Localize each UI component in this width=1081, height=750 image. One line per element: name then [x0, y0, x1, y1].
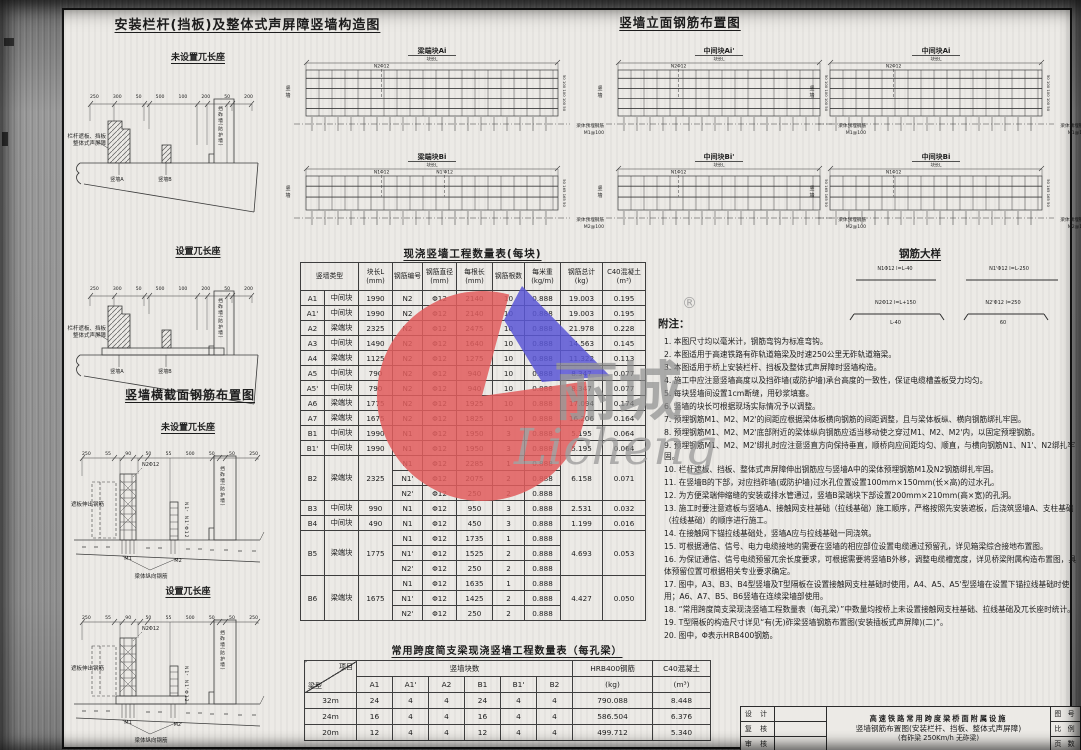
block-table-row: A4梁端块1125N2Φ121275100.88811.3220.113	[301, 351, 646, 366]
scan-mark	[2, 132, 8, 146]
block-table-row: A2梁端块2325N2Φ122475100.88821.9780.228	[301, 321, 646, 336]
ballast-wall-label-1: 挡砟墙(防护墙)	[216, 106, 223, 162]
rebar-n2-label: N2Φ12 l=L+150	[848, 300, 943, 306]
block-table-row: A6梁端块1775N2Φ121925100.88817.0940.174	[301, 396, 646, 411]
wall-a-label-1: 竖墙A	[102, 176, 132, 183]
block-table-row: A1'中间块1990N2Φ122140100.88819.0030.195	[301, 306, 646, 321]
ballast-wall-label-4: 挡砟墙(防护墙)	[218, 630, 225, 686]
block-table-header: 钢筋总计(kg)	[561, 263, 603, 291]
note-item: 5. 每块竖墙间设置1cm断缝，用砂浆填塞。	[664, 388, 1076, 400]
block-table-row: A5'中间块790N2Φ12940100.8888.3470.077	[301, 381, 646, 396]
block-table-header: 每根长(mm)	[457, 263, 493, 291]
railing-label-1: 栏杆遮板、挡板 整体式声屏障	[58, 134, 106, 149]
block-table-row: A1中间块1990N2Φ122140100.88819.0030.195	[301, 291, 646, 306]
block-table-row: B4中间块490N1Φ1245030.8881.1990.016	[301, 516, 646, 531]
notes-title: 附注：	[658, 316, 1076, 331]
block-table-header: 竖墙类型	[301, 263, 359, 291]
notes-section: 附注： 1. 本图尺寸均以毫米计，钢筋弯钩为标准弯钩。2. 本图适用于高速铁路有…	[658, 316, 1076, 643]
block-table-header: 每米重(kg/m)	[525, 263, 561, 291]
rebar-detail-title: 钢筋大样	[878, 246, 962, 261]
rebar-n1p-label: N1'Φ12 l=L-250	[960, 266, 1058, 272]
block-table-row: B3中间块990N1Φ1295030.8882.5310.032	[301, 501, 646, 516]
m1-label-1: M1	[118, 556, 138, 562]
block-table-header: 钢筋根数	[493, 263, 525, 291]
block-table-row: B1中间块1990N1Φ12195030.8885.1950.064	[301, 426, 646, 441]
railing-label-2: 栏杆遮板、挡板 整体式声屏障	[58, 326, 106, 341]
elevation-title: 竖墙立面钢筋布置图	[595, 12, 765, 31]
title-block-role-label: 设 计	[741, 707, 775, 722]
n1-rebar-label-1: N1、N1'Φ12	[182, 502, 188, 546]
note-item: 18. “常用跨度简支梁现浇竖墙工程数量表（每孔梁）”中数量均按桥上未设置接触网…	[664, 604, 1076, 616]
block-table-row: A5中间块790N2Φ12940100.8888.3470.077	[301, 366, 646, 381]
rebar-n2p-label: N2'Φ12 l=250	[960, 300, 1046, 306]
block-table-title: 现浇竖墙工程数量表(每块)	[300, 246, 645, 261]
block-table-row: B5梁端块1775N1Φ12173510.8884.6930.053	[301, 531, 646, 546]
note-item: 7. 预埋钢筋M1、M2、M2'的间距应根据梁体板横向钢筋的间距调整，且与梁体板…	[664, 414, 1076, 426]
construction-drawing-1	[62, 66, 302, 236]
note-item: 10. 栏杆遮板、挡板、整体式声屏障伸出钢筋应与竖墙A中的梁体预埋钢筋M1及N2…	[664, 464, 1076, 476]
title-block-meta-label: 页 数	[1051, 737, 1081, 750]
span-table: 项目梁型竖墙块数HRB400钢筋C40混凝土A1A1'A2B1B1'B2(kg)…	[304, 660, 710, 741]
wall-b-label-2: 竖墙B	[150, 368, 180, 375]
span-table-row: 24m16441644586.5046.376	[305, 709, 711, 725]
block-table-row: B6梁端块1675N1Φ12163510.8884.4270.050	[301, 576, 646, 591]
note-item: 19. T型隔板的构造尺寸详见“有(无)砟梁竖墙钢筋布置图(安装插板式声屏障)(…	[664, 617, 1076, 629]
cross-section-title: 竖墙横截面钢筋布置图	[75, 386, 305, 403]
n1-rebar-label-2: N1、N1'Φ12	[182, 666, 188, 710]
title-block: 设 计高速铁路常用跨度梁桥面附属设施竖墙钢筋布置图(安装栏杆、挡板、整体式声屏障…	[740, 706, 1081, 750]
block-table: 竖墙类型块长L(mm)钢筋编号钢筋直径(mm)每根长(mm)钢筋根数每米重(kg…	[300, 262, 645, 621]
drawing-sheet-page: 安装栏杆(挡板)及整体式声屏障竖墙构造图 未设置兀长座 250300505001…	[0, 0, 1081, 750]
construction-sub2-title: 设置兀长座	[150, 244, 246, 257]
m1-label-2: M1	[118, 720, 138, 726]
note-item: 6. 竖墙的块长可根据现场实际情况予以调整。	[664, 401, 1076, 413]
ballast-wall-label-3: 挡砟墙(防护墙)	[218, 466, 225, 522]
block-table-header: 钢筋编号	[393, 263, 423, 291]
construction-sub1-title: 未设置兀长座	[150, 50, 246, 63]
cross-section-1-dims: 250559050555005050250	[82, 452, 258, 457]
block-table-row: A7梁端块1675N2Φ121825100.88816.2060.164	[301, 411, 646, 426]
note-item: 16. 为保证通信、信号电缆预留兀余长度要求，可根据需要将竖墙B外移，调整电缆槽…	[664, 554, 1076, 578]
ballast-wall-label-2: 挡砟墙(防护墙)	[216, 298, 223, 354]
note-item: 2. 本图适用于高速铁路有砟轨道箱梁及时速250公里无砟轨道箱梁。	[664, 349, 1076, 361]
m2p-label-2: M2'	[168, 722, 188, 728]
construction-2-dims: 2503005050010020050200	[90, 287, 253, 292]
span-table-row: 32m24442444790.0888.448	[305, 693, 711, 709]
block-table-row: B2梁端块2325N1Φ12228510.8886.1580.071	[301, 456, 646, 471]
note-item: 11. 在竖墙B的下部，对应挡砟墙(或防护墙)过水孔位置设置100mm×150m…	[664, 477, 1076, 489]
note-item: 8. 预埋钢筋M1、M2、M2'底部附近的梁体纵向钢筋应适当移动使之穿过M1、M…	[664, 427, 1076, 439]
title-block-meta-label: 比 例	[1051, 722, 1081, 737]
notes-list: 1. 本图尺寸均以毫米计，钢筋弯钩为标准弯钩。2. 本图适用于高速铁路有砟轨道箱…	[658, 336, 1076, 642]
note-item: 3. 本图适用于桥上安装栏杆、挡板及整体式声屏障时竖墙构造。	[664, 362, 1076, 374]
n2-rebar-label-2: N2Φ12	[142, 626, 182, 632]
construction-title: 安装栏杆(挡板)及整体式声屏障竖墙构造图	[75, 14, 420, 33]
block-table-header: C40混凝土(m³)	[603, 263, 646, 291]
span-table-group-header: 竖墙块数	[357, 661, 573, 677]
note-item: 12. 为方便梁端伸缩缝的安装或排水管通过，竖墙B梁端块下部设置200mm×21…	[664, 490, 1076, 502]
wall-a-label-2: 竖墙A	[102, 368, 132, 375]
note-item: 14. 在接触网下锚拉线基础处，竖墙A应与拉线基础一同浇筑。	[664, 528, 1076, 540]
scan-mark	[4, 38, 14, 46]
zheban-label-1: 遮板伸出钢筋	[58, 500, 104, 508]
note-item: 15. 可根据通信、信号、电力电缆接地的需要在竖墙的相应部位设置电缆通过预留孔，…	[664, 541, 1076, 553]
note-item: 13. 施工时要注意遮板与竖墙A、接触网支柱基础（拉线基础）施工顺序，严格按照先…	[664, 503, 1076, 527]
note-item: 9. 预埋钢筋M1、M2、M2'绑扎时应注意竖直方向保持垂直，顺桥向应间距均匀、…	[664, 440, 1076, 464]
title-block-drawing-title: 高速铁路常用跨度梁桥面附属设施竖墙钢筋布置图(安装栏杆、挡板、整体式声屏障)(有…	[827, 707, 1051, 750]
span-table-title: 常用跨度简支梁现浇竖墙工程数量表（每孔梁）	[302, 642, 712, 657]
note-item: 4. 施工中应注意竖墙高度以及挡砟墙(或防护墙)承台高度的一致性，保证电缆槽盖板…	[664, 375, 1076, 387]
note-item: 1. 本图尺寸均以毫米计，钢筋弯钩为标准弯钩。	[664, 336, 1076, 348]
block-table-row: A3中间块1490N2Φ121640100.88814.5630.145	[301, 336, 646, 351]
note-item: 17. 图中，A3、B3、B4型竖墙及T型隔板在设置接触网支柱基础时使用，A4、…	[664, 579, 1076, 603]
note-item: 20. 图中，Φ表示HRB400钢筋。	[664, 630, 1076, 642]
zheban-label-2: 遮板伸出钢筋	[58, 664, 104, 672]
m2-label-1: M2	[168, 558, 188, 564]
rebar-n1-label: N1Φ12 l=L-40	[850, 266, 940, 272]
construction-1-dims: 2503005050010020050200	[90, 95, 253, 100]
beam-rebar-label-1: 梁体纵向钢筋	[116, 572, 186, 580]
block-table-row: B1'中间块1990N1Φ12195030.8885.1950.064	[301, 441, 646, 456]
block-table-header: 钢筋直径(mm)	[423, 263, 457, 291]
span-table-row: 20m12441244499.7125.340	[305, 725, 711, 741]
span-table-corner: 项目梁型	[305, 661, 357, 693]
title-block-meta-label: 图 号	[1051, 707, 1081, 722]
cross-section-2-dims: 250559050555005050250	[82, 616, 258, 621]
title-block-role-label: 审 核	[741, 737, 775, 750]
title-block-role-label: 复 核	[741, 722, 775, 737]
wall-b-label-1: 竖墙B	[150, 176, 180, 183]
block-table-header: 块长L(mm)	[359, 263, 393, 291]
n2-rebar-label-1: N2Φ12	[142, 462, 182, 468]
beam-rebar-label-2: 梁体纵向钢筋	[116, 736, 186, 744]
